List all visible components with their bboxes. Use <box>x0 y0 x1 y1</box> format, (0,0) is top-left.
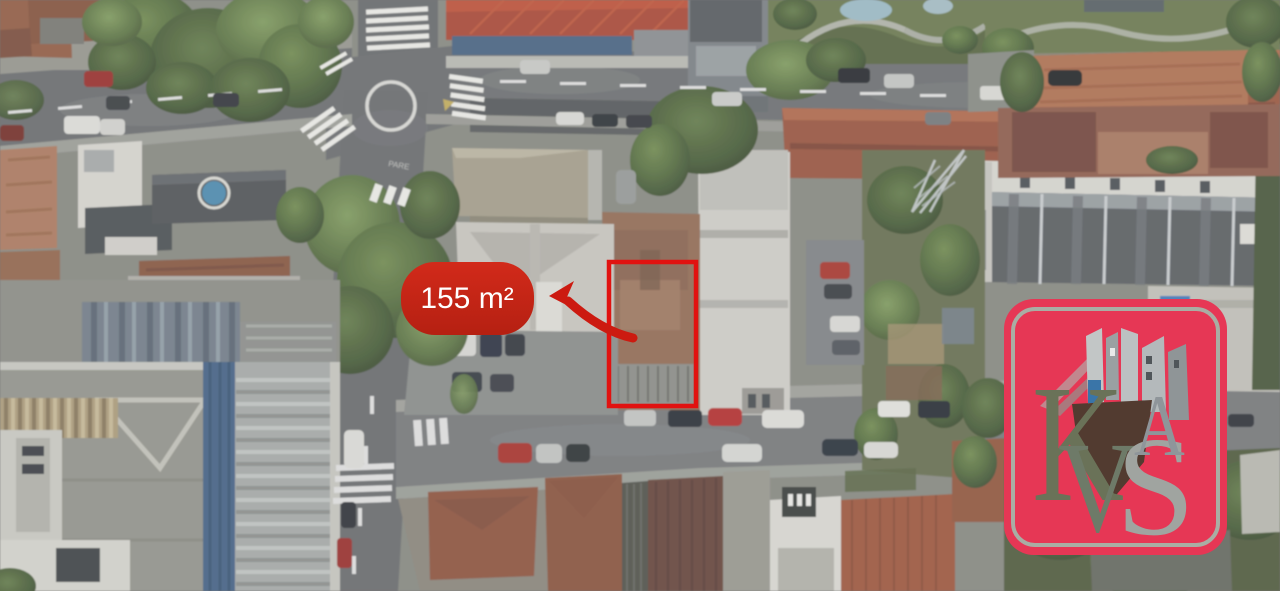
svg-text:155 m²: 155 m² <box>420 282 513 315</box>
svg-text:A: A <box>1134 378 1185 475</box>
